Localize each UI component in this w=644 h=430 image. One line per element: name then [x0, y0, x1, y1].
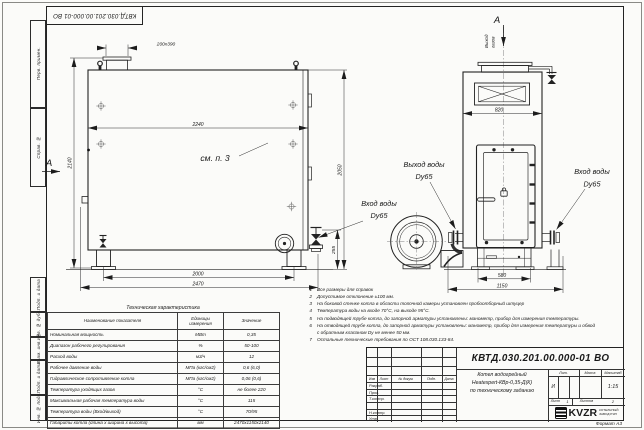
kvzr-logo-icon	[555, 407, 567, 419]
side-view-dimensions	[448, 114, 563, 294]
tech-table: Наименование показателя Единицы измерени…	[47, 312, 280, 429]
tech-characteristics: Техническая характеристика Наименование …	[47, 304, 279, 429]
tech-table-title: Техническая характеристика	[47, 304, 279, 312]
dim-base-overall: 2470	[191, 282, 203, 288]
table-row: Температура воды (Вход/выход)°С70/95	[48, 407, 280, 418]
sight-glass-icon	[275, 234, 293, 252]
mass-label: Масса	[579, 369, 601, 376]
product-model: Heatexpert-КВр-0,35-Д(К)	[456, 379, 548, 387]
col-header-sign: Подп.	[421, 375, 442, 382]
manufacturer-logo: KVZR КОТЕЛЬНЫЙ ЗАВОД РЭП	[548, 405, 625, 422]
dim-front-width: 2240	[191, 122, 203, 128]
door-handle-icon	[478, 198, 496, 201]
label-water-out: Выход воды	[403, 160, 445, 169]
col-header-izm: Изм	[367, 375, 377, 382]
section-marker-top: А Выход газов	[484, 15, 504, 48]
col-header-date: Дата	[442, 375, 456, 382]
lit-value: И	[548, 376, 558, 398]
front-view	[66, 57, 333, 270]
kvzr-logo-text: KVZR	[569, 407, 598, 419]
table-row: Гидравлическое сопротивление котлаМПа (к…	[48, 374, 280, 385]
note-item: 7Остальные технические требования по ОСТ…	[303, 336, 603, 343]
lit-label: Лит.	[548, 369, 579, 376]
col-header-list: Лист	[377, 375, 391, 382]
doc-number: КВТД.030.201.00.000-01 ВО	[456, 348, 625, 369]
gas-outlet-label: Выход	[484, 34, 489, 48]
section-marker-left: А	[42, 158, 60, 172]
inlet-valve-icon	[310, 228, 323, 252]
furnace-door	[477, 145, 536, 248]
see-note-reference: см. п. 3	[200, 153, 229, 163]
side-view	[387, 27, 566, 276]
col-header: Значение	[224, 313, 280, 330]
sheets-value: 2	[601, 398, 625, 405]
gas-outlet-label: газов	[491, 36, 496, 48]
label-water-in-front-dn: Dy65	[370, 211, 388, 220]
section-letter: А	[493, 15, 500, 26]
kvzr-logo-subtext: КОТЕЛЬНЫЙ ЗАВОД РЭП	[599, 409, 618, 417]
plug-symbols	[96, 100, 297, 211]
dim-valve-height: 255	[331, 246, 337, 255]
dim-base-span: 2000	[191, 272, 203, 278]
engineering-drawing-sheet: { "frame": { "stamp_top": "КВТД.030.201.…	[0, 0, 644, 430]
row-approved: Утв.	[367, 415, 395, 422]
note-item: 2Допустимое отклонение ±100 мм.	[303, 293, 603, 300]
note-item: 3На боковой стенке котла в области топоч…	[303, 300, 603, 307]
product-note: по техническому заданию	[456, 387, 548, 395]
table-row: Номинальная мощностьМВт0,35	[48, 330, 280, 341]
table-header-row: Наименование показателя Единицы измерени…	[48, 313, 280, 330]
dim-stub: 200x390	[156, 42, 176, 48]
table-row: Максимальная рабочая температура воды°С1…	[48, 396, 280, 407]
sheet-value: 1	[563, 398, 572, 405]
label-water-in-side-dn: Dy65	[583, 180, 601, 189]
side-base-frame	[472, 248, 535, 270]
product-name: Котел водогрейный	[456, 371, 548, 379]
water-inlet-flange	[542, 231, 563, 270]
col-header: Наименование показателя	[48, 313, 178, 330]
note-item: 5На подводящей трубе котла, до запорной …	[303, 315, 603, 322]
col-header: Единицы измерения	[178, 313, 224, 330]
dim-front-height: 2140	[68, 157, 74, 169]
scale-label: Масштаб	[601, 369, 625, 376]
table-row: Диапазон рабочего регулирования%50-100	[48, 341, 280, 352]
drain-valve-icon	[100, 236, 107, 248]
table-row: Температура уходящих газов°Сне более 220	[48, 385, 280, 396]
note-item: 4Температура воды на входе 70°С, на выхо…	[303, 307, 603, 314]
sheet-label: Лист	[548, 398, 563, 405]
row-developed: Разраб.	[367, 382, 395, 389]
row-tcontrol: Т.контр.	[367, 395, 395, 402]
section-letter: А	[45, 158, 52, 169]
blower-fan-icon	[387, 212, 463, 270]
col-header-doc: № докум.	[391, 375, 421, 382]
technical-notes: 1Все размеры для справок 2Допустимое отк…	[303, 286, 603, 343]
label-water-in-side: Вход воды	[574, 167, 610, 176]
label-water-in-front: Вход воды	[361, 199, 397, 208]
door-clamp-bolts	[530, 164, 535, 224]
table-row: Габариты котла (длина х ширина х высота)…	[48, 418, 280, 429]
scale-value: 1:15	[601, 376, 625, 398]
sheets-label: Листов	[572, 398, 601, 405]
format-note: Формат А3	[556, 422, 622, 427]
front-view-dimensions	[70, 45, 347, 292]
table-row: Рабочее давление водыМПа (кгс/см2)0,6 (6…	[48, 363, 280, 374]
label-water-out-dn: Dy65	[415, 172, 433, 181]
dim-side-base: 580	[498, 273, 507, 279]
door-lock-icon	[501, 188, 507, 196]
table-row: Расход водым3/ч12	[48, 352, 280, 363]
title-block: КВТД.030.201.00.000-01 ВО Изм Лист № док…	[366, 347, 624, 421]
explosion-hatch-icon	[475, 83, 530, 105]
dim-side-height: 2050	[338, 164, 344, 176]
note-item: 6На отводящей трубе котла, до запорной а…	[303, 322, 603, 336]
dim-side-width: 820	[495, 108, 504, 114]
note-item: 1Все размеры для справок	[303, 286, 603, 293]
